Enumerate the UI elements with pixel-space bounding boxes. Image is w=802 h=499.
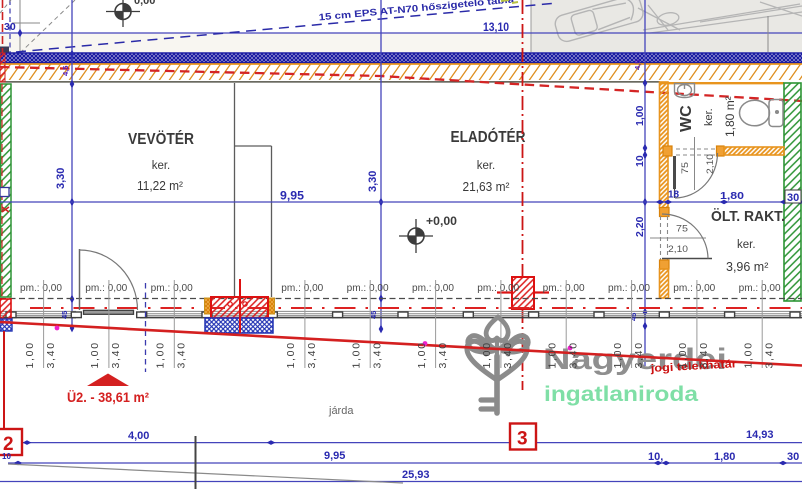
svg-text:3,30: 3,30 xyxy=(367,171,379,192)
svg-text:ELADÓTÉR: ELADÓTÉR xyxy=(451,128,526,146)
svg-text:VEVÖTÉR: VEVÖTÉR xyxy=(128,131,194,148)
svg-text:1,00: 1,00 xyxy=(155,341,167,368)
svg-text:1,00: 1,00 xyxy=(634,105,646,126)
svg-text:ingatlaniroda: ingatlaniroda xyxy=(544,383,698,406)
svg-text:3,40: 3,40 xyxy=(176,341,188,368)
svg-text:14,93: 14,93 xyxy=(746,429,774,441)
svg-text:45: 45 xyxy=(60,311,69,319)
svg-text:2,10: 2,10 xyxy=(705,154,716,174)
svg-text:ker.: ker. xyxy=(152,160,171,172)
svg-text:pm.: 0,00: pm.: 0,00 xyxy=(281,283,323,294)
svg-text:1,00: 1,00 xyxy=(24,341,36,368)
svg-text:30: 30 xyxy=(4,21,16,33)
svg-text:10,: 10, xyxy=(648,451,663,463)
svg-text:3: 3 xyxy=(517,429,528,450)
svg-text:3,40: 3,40 xyxy=(45,341,57,368)
svg-text:járda: járda xyxy=(328,405,354,417)
svg-text:75: 75 xyxy=(676,224,688,235)
svg-text:1,00: 1,00 xyxy=(350,341,362,368)
svg-text:pm.: 0,00: pm.: 0,00 xyxy=(20,283,62,294)
svg-text:4,5: 4,5 xyxy=(61,66,70,76)
svg-text:3,96 m²: 3,96 m² xyxy=(726,260,768,274)
svg-text:18: 18 xyxy=(668,190,680,201)
svg-text:3,40: 3,40 xyxy=(633,341,645,368)
svg-text:30: 30 xyxy=(787,192,799,204)
svg-text:pm.: 0,00: pm.: 0,00 xyxy=(412,283,454,294)
svg-text:pm.: 0,00: pm.: 0,00 xyxy=(739,283,781,294)
svg-text:3,40: 3,40 xyxy=(763,341,775,368)
svg-text:pm.: 0,00: pm.: 0,00 xyxy=(477,283,519,294)
svg-text:1,00: 1,00 xyxy=(89,341,101,368)
svg-text:10: 10 xyxy=(2,452,11,461)
svg-text:30: 30 xyxy=(787,451,799,463)
svg-text:1,80 m²: 1,80 m² xyxy=(723,96,737,137)
svg-text:21,63 m²: 21,63 m² xyxy=(463,180,510,194)
svg-text:1,00: 1,00 xyxy=(742,341,754,368)
svg-text:3,30: 3,30 xyxy=(55,168,67,189)
svg-text:2,20: 2,20 xyxy=(634,216,646,237)
svg-text:pm.: 0,00: pm.: 0,00 xyxy=(543,283,585,294)
svg-text:45: 45 xyxy=(629,313,638,321)
svg-text:1,00: 1,00 xyxy=(416,341,428,368)
svg-text:ker.: ker. xyxy=(737,239,756,251)
svg-text:1,00: 1,00 xyxy=(612,341,624,368)
svg-text:pm.: 0,00: pm.: 0,00 xyxy=(347,283,389,294)
svg-text:3,40: 3,40 xyxy=(698,341,710,368)
svg-text:3,40: 3,40 xyxy=(306,341,318,368)
svg-text:25,93: 25,93 xyxy=(402,469,430,481)
svg-text:9,95: 9,95 xyxy=(280,191,305,203)
svg-text:4,5: 4,5 xyxy=(633,60,642,70)
svg-text:0,00: 0,00 xyxy=(134,0,155,7)
svg-text:3,40: 3,40 xyxy=(371,341,383,368)
svg-text:75: 75 xyxy=(680,162,691,174)
svg-text:1,00: 1,00 xyxy=(546,341,558,368)
svg-text:13,10: 13,10 xyxy=(483,22,509,34)
svg-text:11,22 m²: 11,22 m² xyxy=(137,179,183,193)
svg-text:3,40: 3,40 xyxy=(110,341,122,368)
svg-text:WC: WC xyxy=(678,105,695,132)
svg-text:3,40: 3,40 xyxy=(437,341,449,368)
svg-text:3,40: 3,40 xyxy=(502,341,514,368)
svg-text:1,00: 1,00 xyxy=(677,341,689,368)
svg-text:ÖLT. RAKT.: ÖLT. RAKT. xyxy=(711,208,785,225)
svg-text:pm.: 0,00: pm.: 0,00 xyxy=(608,283,650,294)
svg-text:4,00: 4,00 xyxy=(128,430,149,442)
svg-text:+0,00: +0,00 xyxy=(426,214,457,228)
svg-text:3,40: 3,40 xyxy=(567,341,579,368)
svg-text:1,80: 1,80 xyxy=(714,451,735,463)
svg-text:1,80: 1,80 xyxy=(720,190,744,202)
svg-text:pm.: 0,00: pm.: 0,00 xyxy=(673,283,715,294)
svg-text:ker.: ker. xyxy=(477,160,496,172)
svg-text:10: 10 xyxy=(634,155,646,167)
svg-text:pm.: 0,00: pm.: 0,00 xyxy=(85,283,127,294)
svg-text:2,10: 2,10 xyxy=(668,244,688,255)
svg-text:1,00: 1,00 xyxy=(481,341,493,368)
svg-text:Ü2. - 38,61 m²: Ü2. - 38,61 m² xyxy=(67,390,149,405)
svg-text:9,95: 9,95 xyxy=(324,450,345,462)
svg-text:ker.: ker. xyxy=(703,108,715,126)
svg-text:pm.: 0,00: pm.: 0,00 xyxy=(151,283,193,294)
svg-text:1,00: 1,00 xyxy=(285,341,297,368)
